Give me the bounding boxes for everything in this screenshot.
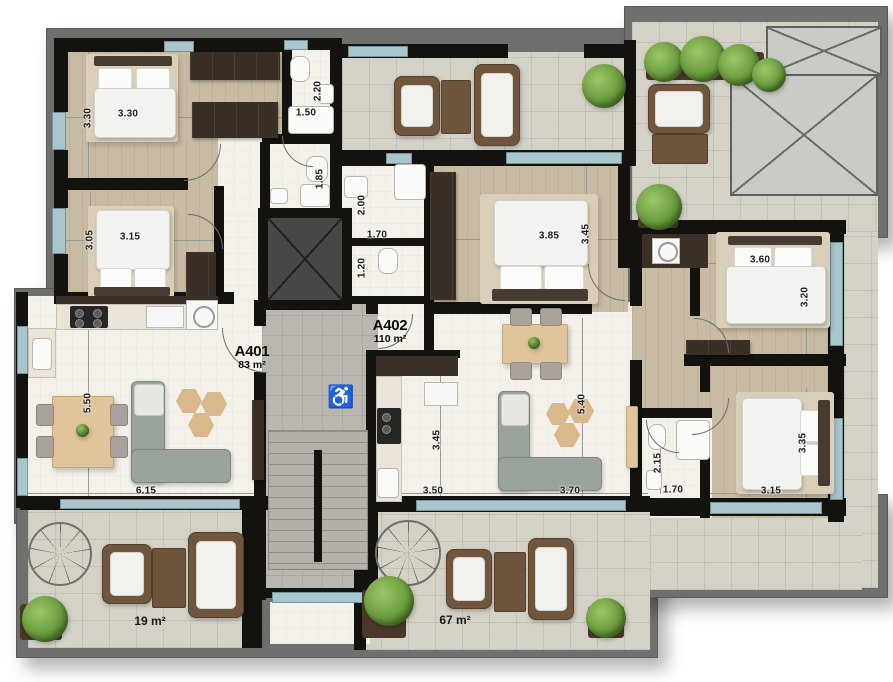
dimension-label: 3.15 <box>120 232 140 243</box>
wall <box>624 40 636 166</box>
chair <box>110 404 128 426</box>
chair <box>510 308 532 326</box>
apartment-name: A402 <box>373 318 408 334</box>
dimension-label: 3.60 <box>750 255 770 266</box>
wall <box>630 220 642 306</box>
dimension-label: 3.70 <box>560 486 580 497</box>
window <box>52 208 66 254</box>
wall <box>618 150 630 268</box>
plant-icon <box>586 598 626 638</box>
kitchen-cabinet <box>146 306 184 328</box>
wall <box>366 300 378 314</box>
sofa-blanket <box>501 394 529 426</box>
chair <box>540 308 562 326</box>
wardrobe <box>186 252 216 296</box>
washer-drum-icon <box>658 242 678 262</box>
wardrobe <box>190 52 280 80</box>
fridge-icon <box>424 382 458 406</box>
bed-pillow <box>500 266 542 290</box>
apartment-name: A401 <box>235 344 270 360</box>
toilet-icon <box>290 56 310 82</box>
window <box>348 46 408 57</box>
window <box>830 242 843 346</box>
floor-plan: 3.30 3.30 3.15 3.05 1.50 2.20 1.85 2.00 … <box>0 0 893 682</box>
plant-icon <box>22 596 68 642</box>
dimension-label: 2.15 <box>653 453 664 473</box>
dimension-label: 3.50 <box>423 486 443 497</box>
outdoor-table <box>652 134 708 164</box>
bed-headboard <box>818 400 830 486</box>
wheelchair-accessible-icon: ♿ <box>327 386 354 408</box>
toilet-icon <box>378 248 398 274</box>
kitchen-sink-icon <box>377 468 399 498</box>
bed-headboard <box>94 56 172 66</box>
sink-icon <box>270 188 288 204</box>
wall <box>54 150 68 208</box>
apartment-label-a402: A402 110 m² <box>373 318 408 345</box>
dimension-label: 3.20 <box>800 287 811 307</box>
window <box>164 41 194 52</box>
burner-icon <box>93 319 102 328</box>
spiral-staircase <box>28 522 92 586</box>
wall <box>338 296 434 304</box>
burner-icon <box>75 319 84 328</box>
bed-headboard <box>492 289 588 301</box>
elevator-icon <box>268 218 342 300</box>
chair <box>36 436 54 458</box>
wardrobe <box>192 102 278 138</box>
floor-balcony-67-right <box>650 518 862 590</box>
wall <box>260 142 270 212</box>
window <box>272 592 364 603</box>
kitchen-sink-icon <box>32 338 52 370</box>
dimension-label: 5.40 <box>577 394 588 414</box>
sofa-blanket <box>134 384 164 416</box>
dimension-label: 3.15 <box>761 486 781 497</box>
outdoor-cushion <box>401 85 433 127</box>
window <box>416 500 626 511</box>
dimension-label: 6.15 <box>136 486 156 497</box>
table-plant-icon <box>76 424 89 437</box>
outdoor-table <box>152 548 186 608</box>
outdoor-cushion <box>453 557 485 601</box>
chair <box>36 404 54 426</box>
bed-pillow <box>544 266 584 290</box>
bed <box>726 266 826 324</box>
dimension-label: 5.50 <box>83 393 94 413</box>
burner-icon <box>93 309 102 318</box>
apartment-label-a401: A401 83 m² <box>235 344 270 371</box>
dimension-line <box>378 493 648 494</box>
kitchen-counter-edge <box>376 356 458 376</box>
window <box>710 502 822 514</box>
tv-console <box>252 400 264 480</box>
table-plant-icon <box>528 337 540 349</box>
terrace-area-label: 19 m² <box>134 614 165 628</box>
dimension-label: 3.30 <box>118 109 138 120</box>
burner-icon <box>382 413 391 422</box>
dimension-label: 1.70 <box>367 230 387 241</box>
dimension-label: 3.45 <box>432 430 443 450</box>
wall <box>54 38 68 112</box>
chair <box>110 436 128 458</box>
burner-icon <box>382 425 391 434</box>
dimension-label: 2.00 <box>357 195 368 215</box>
window <box>506 152 622 164</box>
dimension-label: 2.20 <box>313 81 324 101</box>
terrace-area-label: 67 m² <box>439 613 470 627</box>
dimension-label: 1.85 <box>315 169 326 189</box>
dimension-label: 1.70 <box>663 485 683 496</box>
outdoor-cushion <box>655 91 703 127</box>
dimension-label: 3.45 <box>581 224 592 244</box>
wardrobe <box>430 172 456 300</box>
stair-divider-wall <box>314 450 322 562</box>
bed-pillow <box>98 68 132 90</box>
outdoor-cushion <box>481 73 513 137</box>
washer-drum-icon <box>193 306 215 328</box>
roof-void <box>730 74 878 196</box>
plant-icon <box>582 64 626 108</box>
window <box>52 112 66 150</box>
plant-icon <box>644 42 684 82</box>
dimension-line <box>440 360 441 496</box>
wall <box>54 178 188 190</box>
dimension-label: 3.35 <box>798 433 809 453</box>
apartment-area: 83 m² <box>235 359 270 370</box>
dimension-label: 3.30 <box>83 108 94 128</box>
chair <box>510 362 532 380</box>
window <box>386 153 412 164</box>
dimension-label: 1.20 <box>357 258 368 278</box>
burner-icon <box>75 309 84 318</box>
tv-console <box>626 406 638 468</box>
dimension-label: 3.85 <box>539 231 559 242</box>
window <box>284 40 308 50</box>
outdoor-cushion <box>196 541 236 609</box>
dimension-label: 1.50 <box>296 108 316 119</box>
shower-icon <box>394 164 426 200</box>
window <box>17 326 28 374</box>
plant-icon <box>752 58 786 92</box>
bed-headboard <box>728 236 822 245</box>
dimension-label: 3.05 <box>85 230 96 250</box>
sofa <box>131 449 231 483</box>
wall <box>700 360 710 392</box>
window <box>17 458 28 496</box>
bed-pillow <box>136 68 170 90</box>
plant-icon <box>636 184 682 230</box>
window <box>60 499 240 509</box>
plant-icon <box>364 576 414 626</box>
chair <box>540 362 562 380</box>
sofa <box>498 457 602 491</box>
outdoor-cushion <box>535 547 567 611</box>
bed <box>742 398 802 490</box>
outdoor-table <box>441 80 471 134</box>
apartment-area: 110 m² <box>373 333 408 344</box>
bed-headboard <box>94 287 170 296</box>
wall <box>242 504 262 648</box>
outdoor-table <box>494 552 526 612</box>
outdoor-cushion <box>110 552 144 596</box>
